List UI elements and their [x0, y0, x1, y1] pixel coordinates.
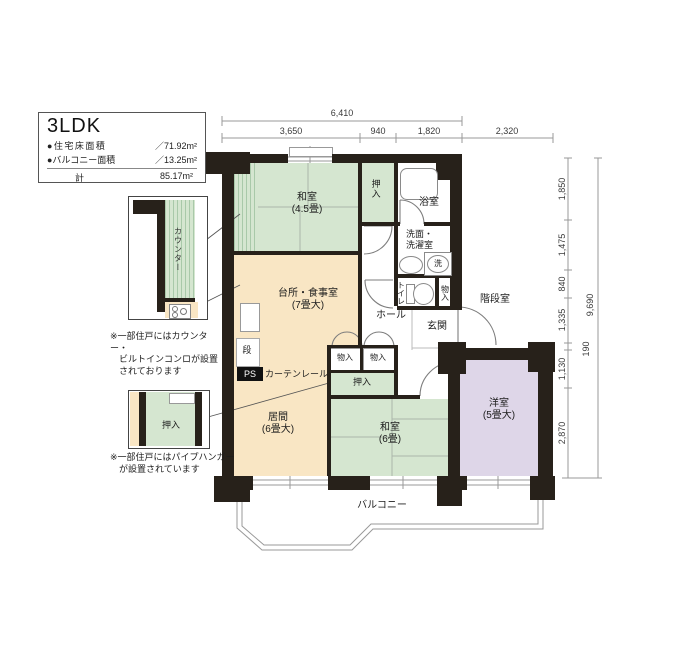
living-name: 居間 [246, 412, 310, 424]
senmen-line1: 洗面・ [406, 229, 456, 240]
note-oshiire-line2: が設置されています [110, 464, 236, 476]
label-step: 段 [237, 345, 257, 356]
dim-top-2: 940 [354, 126, 402, 136]
wall-living-east [327, 345, 331, 476]
wall-washitsu6-top [330, 395, 420, 399]
pillar-bottom-left [214, 476, 250, 502]
dim-top-3: 1,820 [405, 126, 453, 136]
dim-top-total: 6,410 [312, 108, 372, 118]
info-separator [47, 168, 197, 169]
label-kitchen: 台所・食事室 (7畳大) [262, 288, 354, 312]
laundry-glyph: 洗 [434, 259, 442, 268]
total-value: 85.17m² [160, 171, 193, 184]
wall-toilet-storage-div [435, 278, 439, 306]
wall-closet-divider [360, 348, 363, 370]
senmen-line2: 洗濯室 [406, 240, 456, 251]
floorplan-canvas: 3LDK ●住宅床面積／71.92m² ●バルコニー面積／13.25m² 計85… [0, 0, 700, 650]
ps-label: PS [244, 369, 256, 379]
right-dimension-lines [562, 158, 602, 478]
label-hall: ホール [368, 310, 414, 322]
note-counter: ※一部住戸にはカウンター・ ビルトインコンロが設置 されております [110, 331, 222, 377]
wall-yoshitsu-right [538, 360, 553, 476]
kitchen-name: 台所・食事室 [262, 288, 354, 300]
wall-left [222, 154, 234, 490]
pillar-top-left [206, 152, 250, 174]
callout-counter: カウンター [128, 196, 208, 320]
callout-oshiire: 押入 [128, 390, 210, 449]
washbasin [399, 256, 423, 274]
balcony-area-value: ／13.25m² [155, 153, 197, 166]
label-living: 居間 (6畳大) [246, 412, 310, 436]
callout-oshiire-wood-strip [130, 392, 139, 446]
pipe-space-box: PS [237, 367, 263, 381]
note-oshiire-line1: ※一部住戸にはパイプハンガー [110, 452, 236, 464]
counter-strip [234, 163, 258, 251]
note-counter-line3: されております [110, 366, 222, 378]
label-toilet: トイレ [396, 280, 405, 306]
pillar-bottom-right [530, 476, 555, 500]
total-label: 計 [75, 171, 84, 184]
pillar-bottom-mid [437, 476, 462, 506]
washitsu6-size: (6畳) [366, 434, 414, 446]
note-counter-line1: ※一部住戸にはカウンター・ [110, 331, 222, 354]
wall-bath-bottom-b [424, 222, 452, 226]
floor-area-label: ●住宅床面積 [47, 139, 106, 152]
washitsu6-name: 和室 [366, 422, 414, 434]
washitsu45-size: (4.5畳) [272, 204, 342, 216]
washitsu45-name: 和室 [272, 192, 342, 204]
wall-kitchen-hall [358, 251, 362, 345]
bathtub [400, 168, 438, 200]
label-genkan: 玄関 [418, 321, 456, 333]
plan-type-title: 3LDK [47, 115, 197, 138]
callout-oshiire-wall-right [195, 392, 202, 446]
yoshitsu-name: 洋室 [466, 398, 532, 410]
yoshitsu-size: (5畳大) [466, 410, 532, 422]
floor-area-value: ／71.92m² [155, 139, 197, 152]
balcony-area-label: ●バルコニー面積 [47, 153, 115, 166]
living-size: (6畳大) [246, 424, 310, 436]
wall-oshiire-left [358, 162, 362, 251]
label-storage-b: 物入 [364, 353, 392, 362]
label-curtain-rail: カーテンレール [265, 369, 335, 380]
callout-oshiire-label: 押入 [153, 420, 189, 431]
kitchen-sink [240, 303, 260, 332]
label-storage-a: 物入 [331, 353, 359, 362]
label-stairwell: 階段室 [472, 294, 518, 306]
label-balcony: バルコニー [348, 500, 416, 512]
konro-burner-2 [172, 312, 178, 318]
callout-counter-label: カウンター [173, 213, 182, 285]
dim-right-6: 2,870 [557, 408, 567, 458]
label-washitsu6: 和室 (6畳) [366, 422, 414, 446]
note-oshiire: ※一部住戸にはパイプハンガー が設置されています [110, 452, 236, 475]
toilet-bowl [413, 283, 434, 305]
wall-closet-block-right [394, 345, 398, 398]
callout-oshiire-wall-left [139, 392, 146, 446]
dim-right-5: 1,130 [557, 344, 567, 394]
dim-top-1: 3,650 [261, 126, 321, 136]
wall-bottom-2 [328, 476, 370, 490]
label-bath: 浴室 [408, 197, 450, 209]
label-oshiire-mid: 押入 [346, 377, 378, 388]
dim-right-4: 1,335 [557, 295, 567, 345]
label-yoshitsu: 洋室 (5畳大) [466, 398, 532, 422]
callout-oshiire-shelf [169, 393, 195, 404]
info-box: 3LDK ●住宅床面積／71.92m² ●バルコニー面積／13.25m² 計85… [38, 112, 206, 183]
dim-top-4: 2,320 [483, 126, 531, 136]
pillar-top-right [436, 154, 462, 180]
note-counter-line2: ビルトインコンロが設置 [110, 354, 222, 366]
label-senmen: 洗面・ 洗濯室 [402, 229, 456, 250]
callout-counter-wall-v [157, 200, 165, 312]
wall-washitsu45-bottom [234, 251, 362, 255]
wall-closet-block-top [330, 345, 398, 348]
konro-burner-3 [180, 308, 187, 315]
top-window-frame [289, 147, 333, 157]
wall-bath-bottom-a [358, 222, 400, 226]
label-oshiire-top: 押入 [370, 172, 381, 206]
washing-machine-icon: 洗 [427, 255, 449, 273]
kitchen-size: (7畳大) [262, 300, 354, 312]
wall-closet-block-mid [331, 370, 394, 373]
dim-right-step: 190 [581, 329, 591, 369]
dim-right-total: 9,690 [585, 280, 595, 330]
dim-right-1: 1,850 [557, 164, 567, 214]
label-washitsu45: 和室 (4.5畳) [272, 192, 342, 216]
wall-yoshitsu-left [448, 348, 460, 476]
label-storage-wc: 物入 [440, 279, 449, 307]
